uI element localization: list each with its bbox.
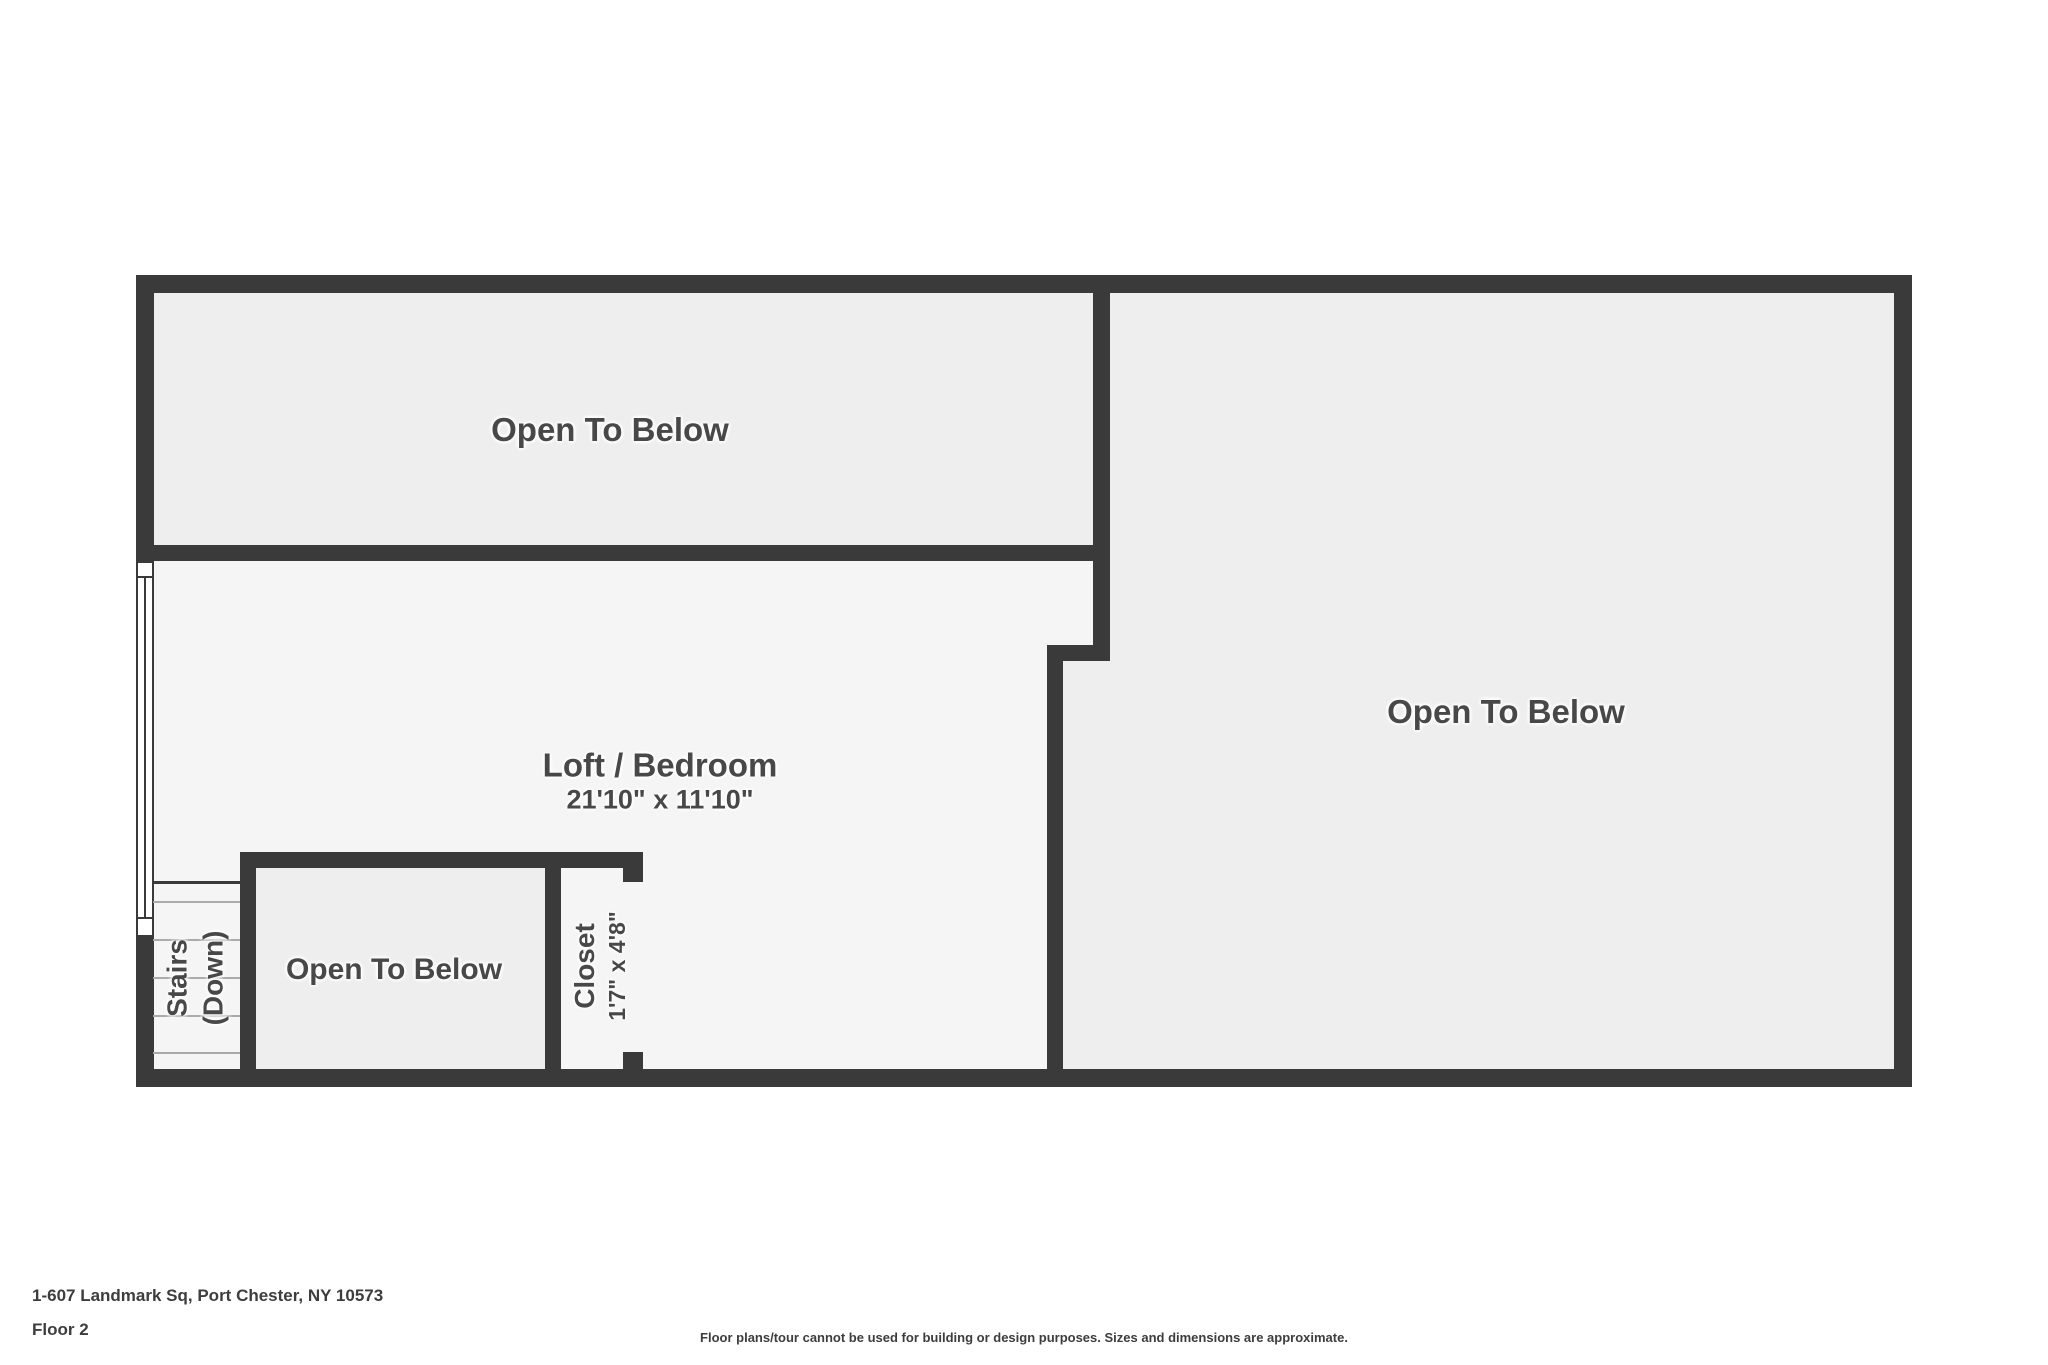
room-label-open-to-below-top-left: Open To Below	[491, 411, 729, 449]
wall-small-room-left	[240, 852, 256, 1087]
stair-tread	[153, 1052, 240, 1054]
room-label-loft-bedroom: Loft / Bedroom 21'10" x 11'10"	[543, 747, 778, 816]
closet-dimensions: 1'7" x 4'8"	[603, 911, 633, 1021]
floor-plan-page: Open To Below Open To Below Loft / Bedro…	[0, 0, 2048, 1365]
stairs-edge-line	[153, 881, 240, 884]
wall-interior-horizontal	[136, 545, 1110, 561]
loft-dimensions: 21'10" x 11'10"	[543, 784, 778, 815]
closet-name: Closet	[567, 911, 603, 1021]
wall-outer-top	[136, 275, 1912, 293]
wall-closet-jamb-bottom	[623, 1052, 643, 1087]
stairs-label-line1: Stairs	[160, 931, 196, 1026]
stairs-label-line2: (Down)	[196, 931, 232, 1026]
wall-divider-upper	[1093, 275, 1110, 661]
wall-divider-lower	[1047, 645, 1063, 1087]
room-label-closet: Closet 1'7" x 4'8"	[567, 911, 633, 1021]
wall-closet-left	[545, 852, 561, 1087]
wall-outer-bottom	[136, 1069, 1912, 1087]
loft-name: Loft / Bedroom	[543, 747, 778, 785]
stair-tread	[153, 901, 240, 903]
room-label-open-to-below-right: Open To Below	[1387, 693, 1625, 731]
address-text: 1-607 Landmark Sq, Port Chester, NY 1057…	[32, 1286, 383, 1306]
wall-small-room-top	[240, 852, 643, 868]
floor-open-to-below-right-upper	[1110, 293, 1894, 661]
wall-closet-jamb-top	[623, 852, 643, 882]
disclaimer-text: Floor plans/tour cannot be used for buil…	[0, 1330, 2048, 1345]
wall-outer-right	[1894, 275, 1912, 1087]
room-label-stairs: Stairs (Down)	[160, 931, 233, 1026]
window-icon	[136, 561, 154, 937]
room-label-open-to-below-small: Open To Below	[286, 953, 502, 988]
window-pane-line	[144, 578, 146, 919]
